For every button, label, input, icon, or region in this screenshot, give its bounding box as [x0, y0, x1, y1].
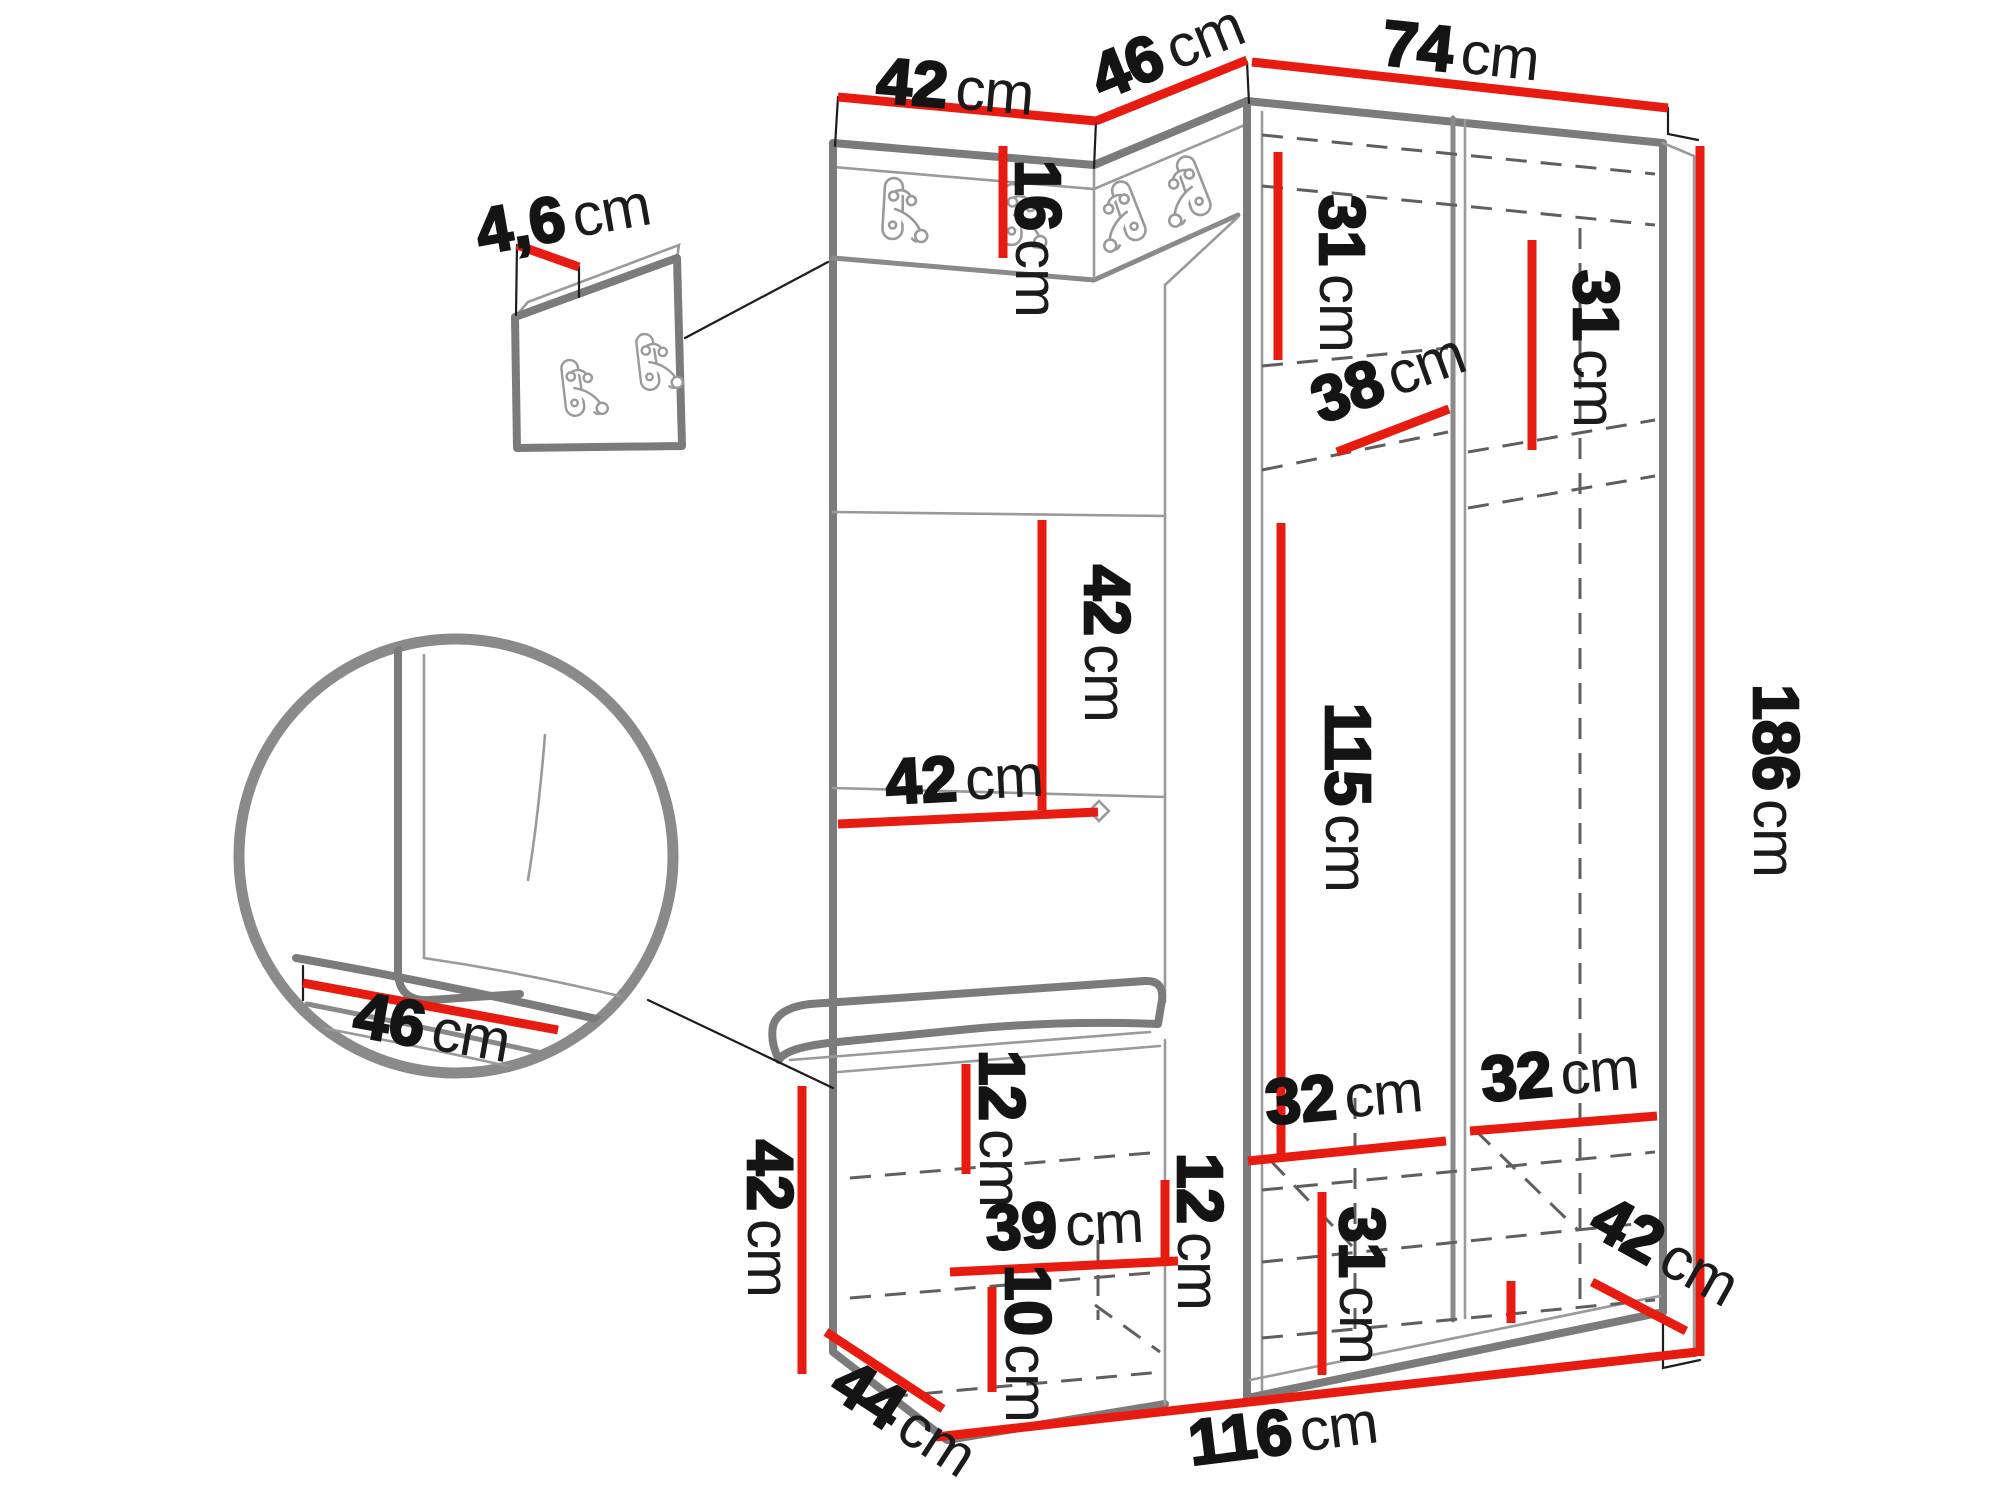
dim-label-bench-side-gap: 12 cm: [1164, 1153, 1236, 1310]
dimension-value: 38: [1302, 345, 1394, 437]
coat-hook-icon: [882, 178, 929, 243]
hook-panel-detail: [515, 245, 828, 448]
dim-label-right-top-height: 31 cm: [1560, 270, 1632, 427]
dimension-unit: cm: [735, 1219, 802, 1297]
dimension-unit: cm: [1307, 274, 1374, 352]
dimension-unit: cm: [1377, 319, 1473, 409]
dim-label-seat-gap: 12 cm: [966, 1050, 1038, 1207]
dimension-value: 42: [884, 742, 959, 818]
dim-label-left-shelf-width: 32 cm: [1262, 1053, 1425, 1138]
dimension-unit: cm: [1327, 1286, 1394, 1364]
dim-label-bench-shelf-width: 39 cm: [984, 1184, 1145, 1264]
dimension-value: 32: [1478, 1038, 1555, 1116]
dimension-value: 116: [1184, 1395, 1295, 1479]
dimension-unit: cm: [567, 171, 655, 251]
seat-detail-magnifier: [239, 639, 833, 1088]
bench-back-dashed-diagonal: [1095, 1305, 1160, 1352]
furniture-dimension-diagram: 42 cm 46 cm 74 cm 4,6 cm 16 cm 31 cm 31 …: [0, 0, 2000, 1500]
dimension-value: 42: [1071, 565, 1143, 636]
dimension-value: 31: [1306, 195, 1378, 266]
dimension-unit: cm: [1557, 1034, 1641, 1108]
dimension-unit: cm: [1072, 644, 1139, 722]
dim-label-panel-thickness: 4,6 cm: [470, 167, 655, 268]
coat-hook-icon: [559, 356, 608, 419]
left-shelf-dashed-2: [1262, 432, 1448, 470]
dimension-unit: cm: [993, 1344, 1060, 1422]
dim-label-total-width: 116 cm: [1184, 1384, 1381, 1479]
tick: [835, 97, 838, 146]
dimension-value: 42: [874, 44, 951, 122]
dimension-value: 115: [1312, 703, 1384, 806]
tick: [1668, 108, 1698, 140]
dim-label-right-shelf-width: 32 cm: [1478, 1030, 1641, 1115]
detail-panel-outline: [515, 258, 682, 448]
dimension-value: 42: [734, 1140, 806, 1211]
dimension-unit: cm: [1458, 19, 1543, 94]
bottom-right-dashed-diagonal: [1475, 1130, 1578, 1230]
dimension-value: 4,6: [470, 182, 570, 268]
dim-label-panel-tile-height: 42 cm: [1071, 565, 1143, 722]
dimension-unit: cm: [953, 55, 1037, 129]
dimension-value: 31: [1560, 270, 1632, 341]
dim-label-left-top-height: 31 cm: [1306, 195, 1378, 352]
dimension-unit: cm: [1155, 0, 1252, 83]
dimension-unit: cm: [1063, 1188, 1144, 1259]
diagram-canvas: 42 cm 46 cm 74 cm 4,6 cm 16 cm 31 cm 31 …: [0, 0, 2000, 1500]
dim-label-top-left-width: 42 cm: [874, 44, 1037, 129]
dim-label-total-height: 186 cm: [1740, 684, 1812, 877]
dimension-unit: cm: [427, 996, 515, 1076]
wardrobe-bottom-edge: [1247, 1312, 1663, 1398]
dimension-value: 74: [1379, 6, 1458, 85]
dimension-line-panel-tile-width: [838, 812, 1098, 824]
dimension-unit: cm: [1341, 1057, 1425, 1131]
dimension-value: 46: [349, 978, 432, 1061]
coat-hook-icon: [1150, 154, 1214, 229]
dim-label-panel-tile-width: 42 cm: [884, 738, 1045, 818]
dimension-value: 16: [1002, 160, 1074, 231]
dimension-value: 12: [1164, 1153, 1236, 1224]
dimension-value: 10: [992, 1265, 1064, 1336]
dimension-value: 186: [1740, 684, 1812, 791]
dimension-value: 32: [1262, 1061, 1339, 1139]
dim-label-bench-depth: 44 cm: [819, 1344, 990, 1490]
wardrobe-side-sliver: [1663, 143, 1694, 1356]
dimension-unit: cm: [963, 742, 1044, 813]
dimension-unit: cm: [1003, 239, 1070, 317]
dimension-line-right-shelf-width: [1470, 1116, 1657, 1131]
top-panel-dashed-1: [1262, 135, 1655, 174]
dimension-value: 31: [1326, 1207, 1398, 1278]
detail-leader-line: [685, 262, 828, 338]
dim-label-hanging-space: 115 cm: [1312, 703, 1384, 892]
dim-label-bench-bottom: 10 cm: [992, 1265, 1064, 1422]
dimension-value: 39: [984, 1188, 1059, 1264]
dimension-unit: cm: [1741, 799, 1808, 877]
dimension-unit: cm: [1165, 1232, 1232, 1310]
dim-label-hook-strip-height: 16 cm: [1002, 160, 1074, 317]
dimension-value: 12: [966, 1050, 1038, 1121]
dimension-unit: cm: [1295, 1388, 1381, 1464]
right-shelf-dashed-2: [1468, 476, 1655, 508]
dimension-unit: cm: [1561, 349, 1628, 427]
dimension-unit: cm: [1313, 814, 1380, 892]
tick: [1247, 62, 1249, 103]
dim-label-bench-height: 42 cm: [734, 1140, 806, 1297]
dim-label-bottom-section: 31 cm: [1326, 1207, 1398, 1364]
panel-seam-1: [833, 512, 1165, 516]
